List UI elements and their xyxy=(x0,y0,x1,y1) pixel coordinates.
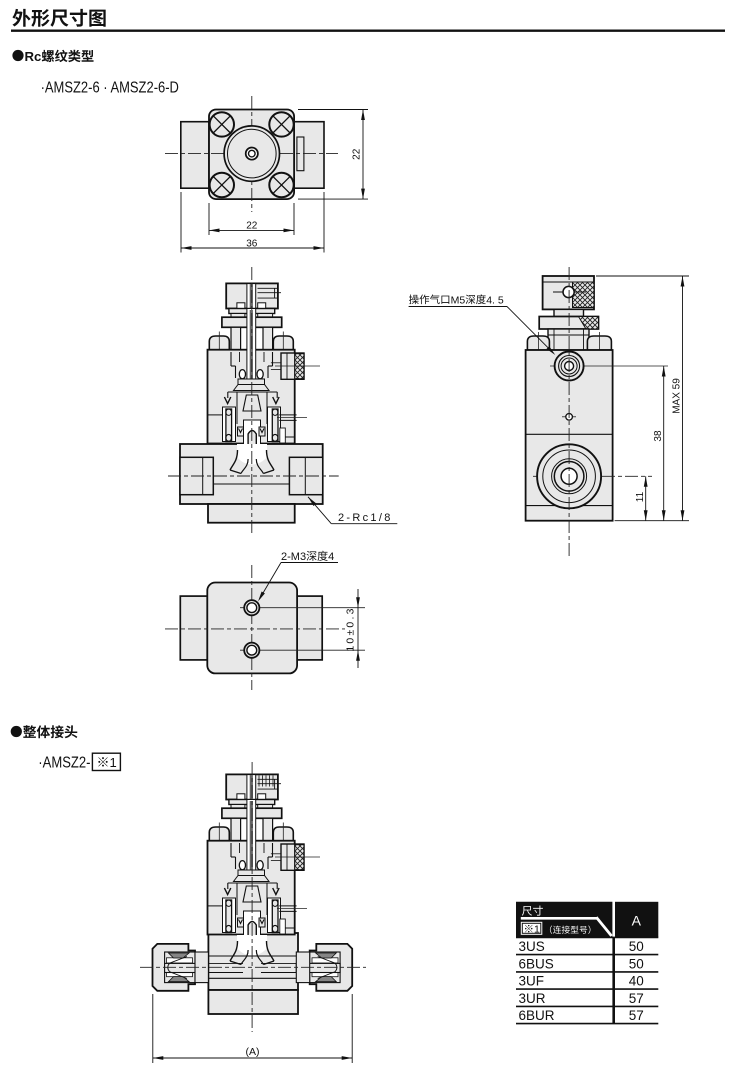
svg-text:2-Rc1/8: 2-Rc1/8 xyxy=(338,512,393,524)
svg-text:(A): (A) xyxy=(246,1046,260,1058)
svg-text:3UR: 3UR xyxy=(519,991,546,1006)
svg-text:22: 22 xyxy=(352,148,363,160)
svg-text:2-M3: 2-M3 xyxy=(281,551,306,563)
svg-text:38: 38 xyxy=(653,430,664,442)
svg-text:3US: 3US xyxy=(519,939,545,954)
svg-text:6BUR: 6BUR xyxy=(519,1008,555,1023)
svg-text:40: 40 xyxy=(629,974,644,989)
svg-text:57: 57 xyxy=(629,991,644,1006)
svg-text:22: 22 xyxy=(246,221,258,232)
svg-text:·AMSZ2-6 · AMSZ2-6-D: ·AMSZ2-6 · AMSZ2-6-D xyxy=(41,80,179,97)
svg-text:1: 1 xyxy=(110,755,117,770)
svg-text:Rc: Rc xyxy=(25,49,42,64)
svg-text:M5: M5 xyxy=(451,294,466,306)
svg-text:50: 50 xyxy=(629,939,644,954)
svg-text:MAX 59: MAX 59 xyxy=(672,378,683,414)
svg-text:36: 36 xyxy=(246,238,258,249)
svg-text:4: 4 xyxy=(328,551,334,563)
svg-text:10±0.3: 10±0.3 xyxy=(344,606,356,651)
svg-text:50: 50 xyxy=(629,956,644,971)
svg-text:11: 11 xyxy=(635,491,646,502)
svg-text:·AMSZ2-: ·AMSZ2- xyxy=(38,755,90,772)
svg-text:3UF: 3UF xyxy=(519,974,545,989)
svg-text:57: 57 xyxy=(629,1008,644,1023)
svg-text:4. 5: 4. 5 xyxy=(486,294,504,306)
svg-text:6BUS: 6BUS xyxy=(519,956,554,971)
svg-text:A: A xyxy=(632,913,642,929)
svg-text:1: 1 xyxy=(534,924,540,936)
